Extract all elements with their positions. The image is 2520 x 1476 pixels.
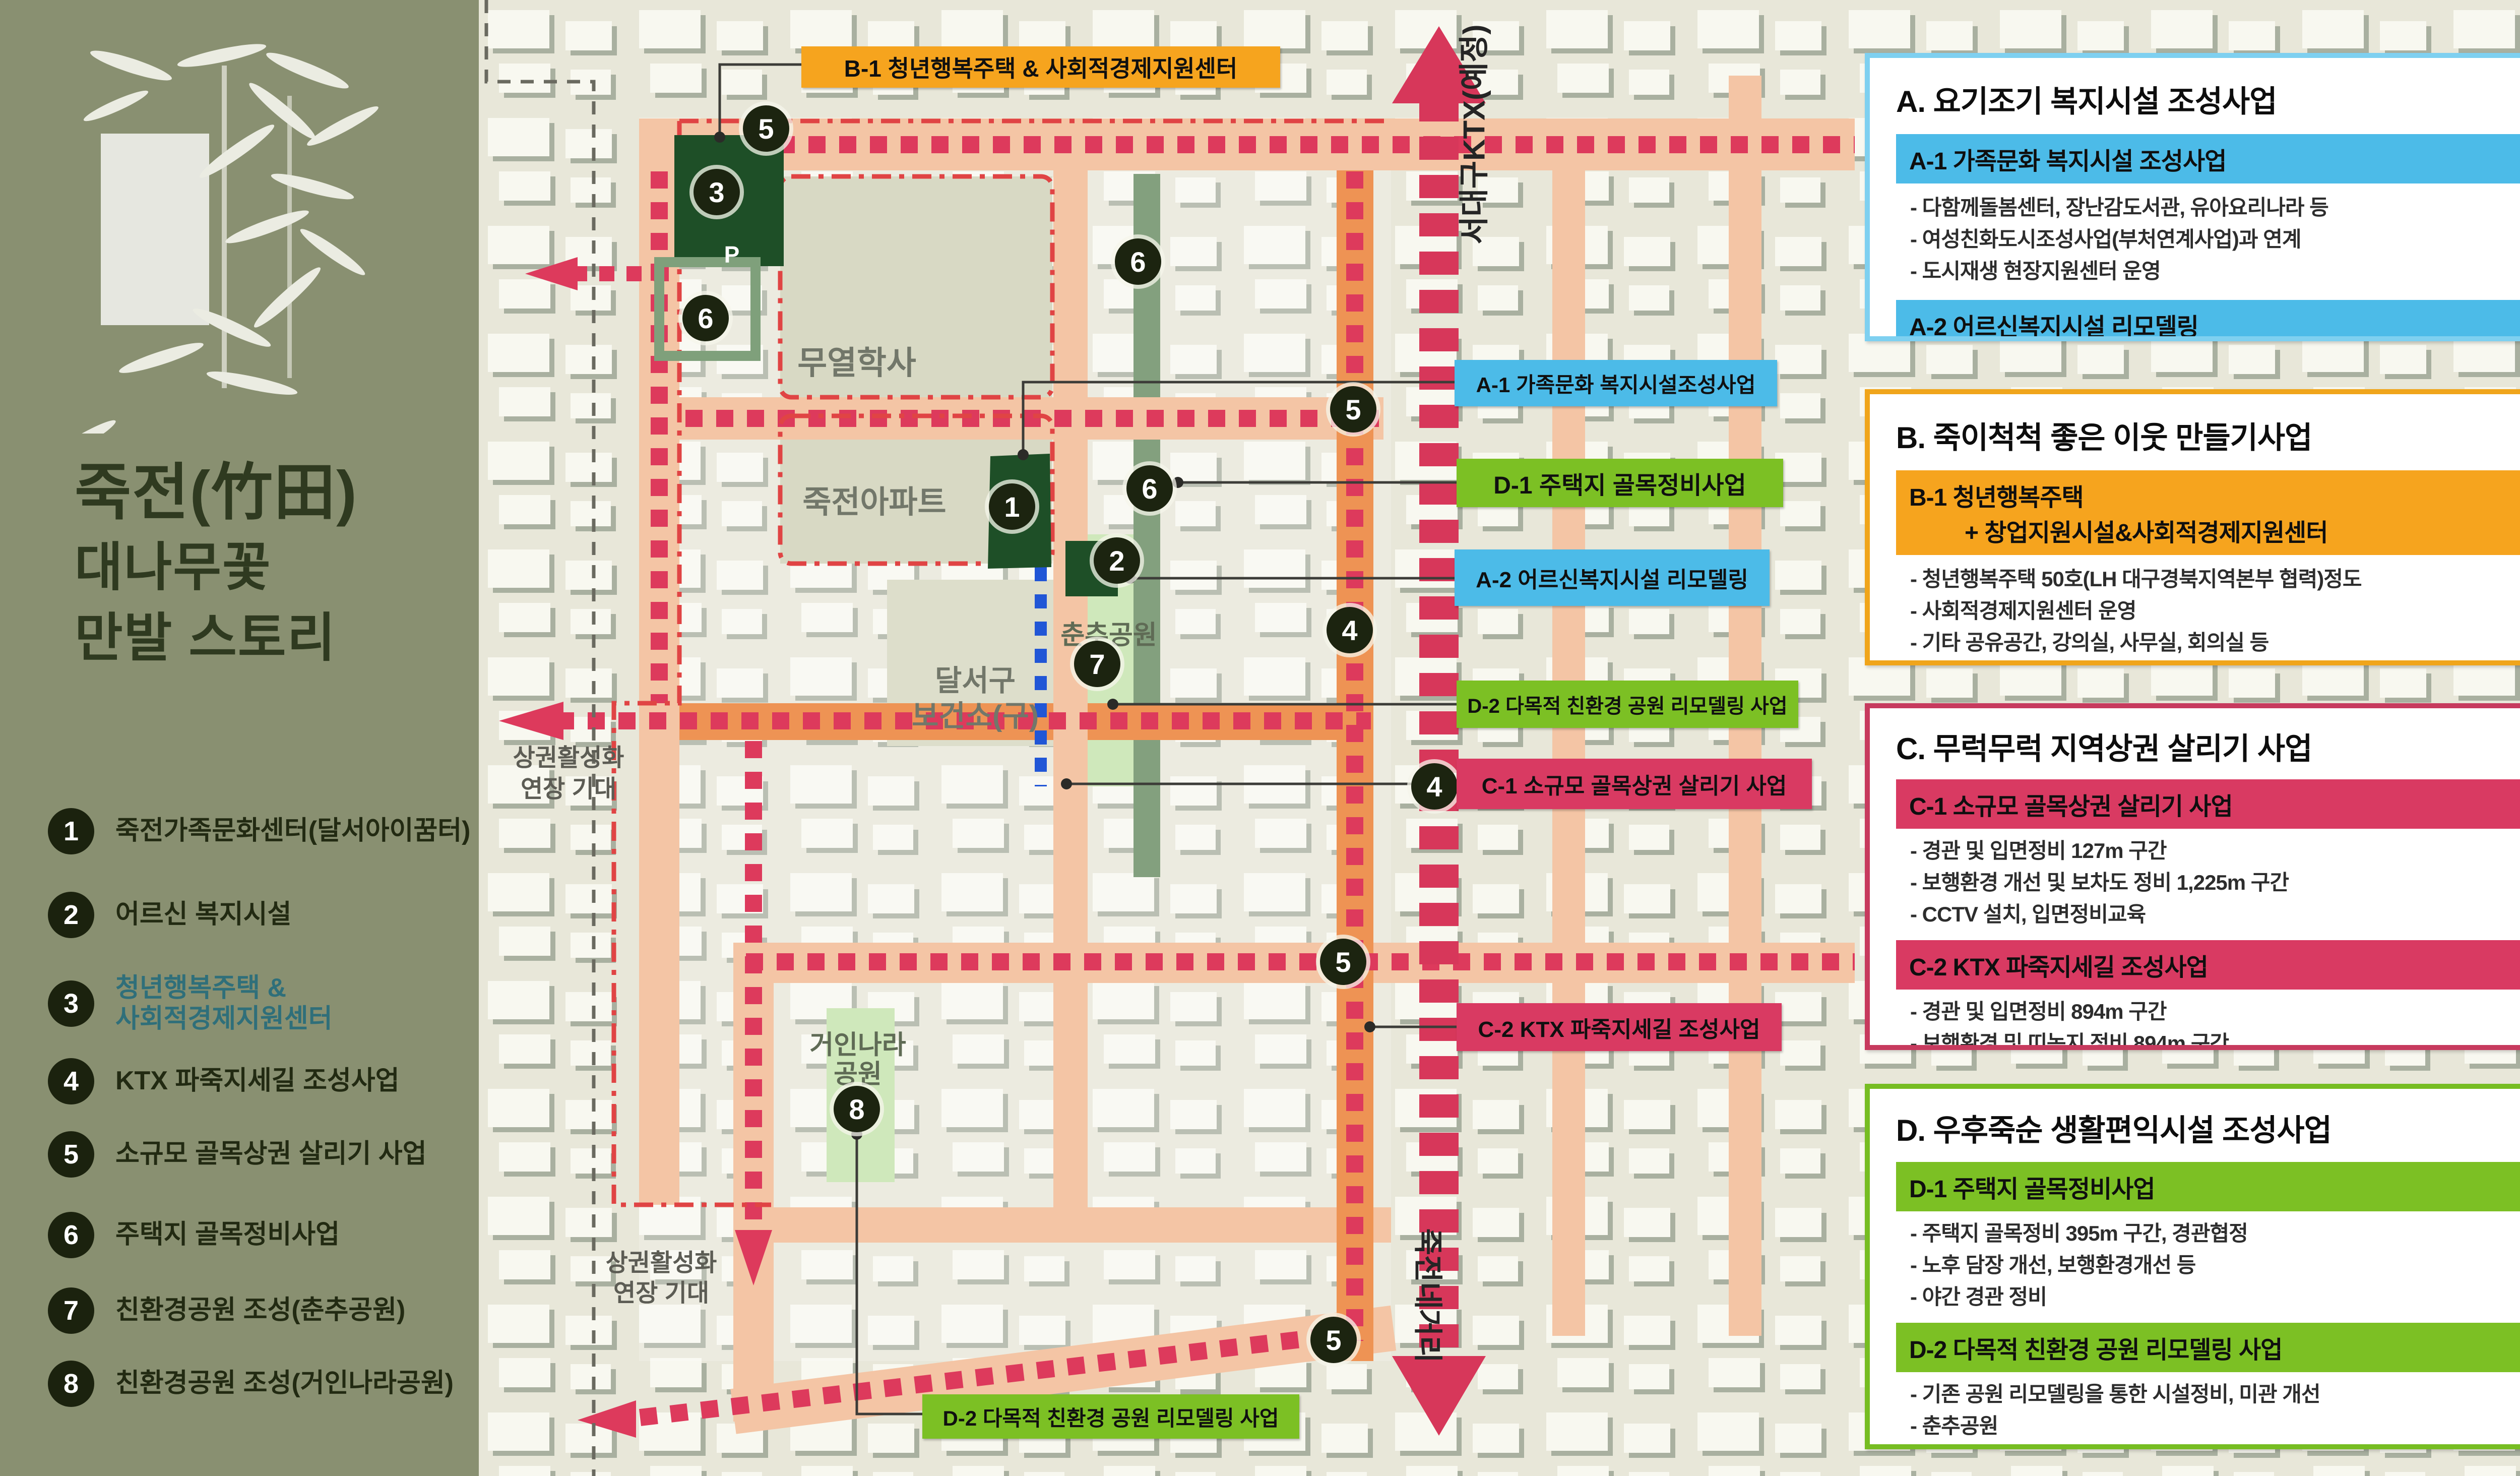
legend-number-7: 7: [48, 1287, 94, 1334]
legend-number-3: 3: [48, 980, 94, 1027]
label-jukjeon-intersection: 죽전네거리: [1409, 1195, 1452, 1396]
district-renewal-poster: 무열학사 죽전아파트 달서구 보건소(구) 춘추공원 거인나라 공원 상권활성화…: [0, 0, 2520, 1476]
bullet: - CCTV 설치, 입면정비교육: [1910, 898, 2520, 930]
map-marker-5: 5: [743, 105, 789, 152]
legend-label-7: 친환경공원 조성(춘추공원): [115, 1295, 405, 1326]
label-muyeolhaksa: 무열학사: [797, 337, 916, 384]
legend-number-4: 4: [48, 1058, 94, 1104]
poster-title-line1: 죽전(竹田): [75, 443, 358, 532]
map-marker-6: 6: [682, 295, 729, 341]
poster-title-line3: 만발 스토리: [75, 595, 336, 671]
panel-c-title: C. 무럭무럭 지역상권 살리기 사업: [1896, 724, 2520, 768]
parking-icon: P: [724, 241, 740, 268]
panel-c-commerce: C. 무럭무럭 지역상권 살리기 사업 C-1 소규모 골목상권 살리기 사업 …: [1865, 703, 2520, 1050]
bullet: - 주택지 골목정비 395m 구간, 경관협정: [1910, 1217, 2520, 1249]
map-marker-7: 7: [1074, 641, 1120, 687]
label-commerce-extension1-line2: 연장 기대: [521, 769, 616, 804]
panel-b1-header-line2: + 창업지원시설&사회적경제지원센터: [1909, 513, 2510, 548]
bullet: - 기타 공유공간, 강의실, 사무실, 회의실 등: [1910, 627, 2520, 658]
label-commerce-extension2-line2: 연장 기대: [613, 1273, 709, 1308]
legend-number-5: 5: [48, 1131, 94, 1178]
bullet: - 여성친화도시조성사업(부처연계사업)과 연계: [1910, 223, 2520, 255]
callout-d2-bottom: D-2 다목적 친환경 공원 리모델링 사업: [922, 1394, 1299, 1439]
panel-d-title: D. 우후죽순 생활편익시설 조성사업: [1896, 1106, 2520, 1150]
map-marker-2: 2: [1094, 537, 1140, 584]
legend-item-3: 3 청년행복주택 & 사회적경제지원센터: [48, 973, 333, 1035]
legend-item-8: 8 친환경공원 조성(거인나라공원): [48, 1361, 454, 1407]
panel-a1-header: A-1 가족문화 복지시설 조성사업: [1896, 134, 2520, 183]
panel-d1-bullets: - 주택지 골목정비 395m 구간, 경관협정 - 노후 담장 개선, 보행환…: [1896, 1217, 2520, 1313]
map-marker-6: 6: [1126, 465, 1173, 512]
bullet: - 보행환경 개선 및 보차도 정비 1,225m 구간: [1910, 867, 2520, 898]
panel-c2-header: C-2 KTX 파죽지세길 조성사업: [1896, 940, 2520, 990]
sidebar: 죽전(竹田) 대나무꽃 만발 스토리 1 죽전가족문화센터(달서아이꿈터) 2 …: [0, 0, 479, 1476]
bullet: - 춘추공원: [1910, 1410, 2520, 1442]
callout-d2-park: D-2 다목적 친환경 공원 리모델링 사업: [1457, 681, 1798, 728]
legend-label-6: 주택지 골목정비사업: [115, 1219, 340, 1250]
map-marker-5: 5: [1310, 1317, 1357, 1363]
legend-label-3-line2: 사회적경제지원센터: [115, 1004, 333, 1034]
label-seodaegu-ktx: 서대구KTX(예정): [1450, 0, 1494, 311]
legend-number-1: 1: [48, 808, 94, 854]
bamboo-illustration: [71, 35, 383, 434]
legend-number-6: 6: [48, 1212, 94, 1258]
bullet: - 보행환경 및 띠녹지 정비 894m 구간: [1910, 1027, 2520, 1050]
map-marker-6: 6: [1115, 238, 1161, 285]
map-marker-3: 3: [694, 169, 740, 215]
bullet: - 거인나라공원: [1910, 1442, 2520, 1449]
panel-a1-bullets: - 다함께돌봄센터, 장난감도서관, 유아요리나라 등 - 여성친화도시조성사업…: [1896, 192, 2520, 287]
panel-b1-header: B-1 청년행복주택 + 창업지원시설&사회적경제지원센터: [1896, 470, 2520, 555]
legend-item-5: 5 소규모 골목상권 살리기 사업: [48, 1131, 426, 1178]
panel-b-title: B. 죽이척척 좋은 이웃 만들기사업: [1896, 413, 2520, 457]
bullet: - 다함께돌봄센터, 장난감도서관, 유아요리나라 등: [1910, 192, 2520, 223]
panel-a-welfare: A. 요기조기 복지시설 조성사업 A-1 가족문화 복지시설 조성사업 - 다…: [1865, 53, 2520, 341]
panel-d-living: D. 우후죽순 생활편익시설 조성사업 D-1 주택지 골목정비사업 - 주택지…: [1865, 1084, 2520, 1449]
legend-item-6: 6 주택지 골목정비사업: [48, 1212, 340, 1258]
callout-c2: C-2 KTX 파죽지세길 조성사업: [1457, 1003, 1782, 1051]
bullet: - 청년행복주택 50호(LH 대구경북지역본부 협력)정도: [1910, 563, 2520, 595]
panel-b-neighbor: B. 죽이척척 좋은 이웃 만들기사업 B-1 청년행복주택 + 창업지원시설&…: [1865, 389, 2520, 665]
legend-number-8: 8: [48, 1361, 94, 1407]
map-marker-4: 4: [1411, 763, 1458, 810]
label-commerce-extension1-line1: 상권활성화: [513, 737, 624, 773]
poster-title-line2: 대나무꽃: [75, 524, 272, 600]
callout-b1: B-1 청년행복주택 & 사회적경제지원센터: [801, 46, 1280, 88]
bullet: - 도시재생 현장지원센터 운영: [1910, 255, 2520, 287]
legend-label-3: 청년행복주택 & 사회적경제지원센터: [115, 973, 333, 1035]
legend-item-4: 4 KTX 파죽지세길 조성사업: [48, 1058, 399, 1104]
map-marker-5: 5: [1330, 386, 1376, 433]
callout-a1: A-1 가족문화 복지시설조성사업: [1455, 360, 1777, 406]
map-marker-5: 5: [1320, 939, 1366, 985]
legend-label-8: 친환경공원 조성(거인나라공원): [115, 1368, 454, 1399]
bullet: - 경관 및 입면정비 127m 구간: [1910, 835, 2520, 867]
panel-d2-bullets: - 기존 공원 리모델링을 통한 시설정비, 미관 개선 - 춘추공원 - 거인…: [1896, 1378, 2520, 1449]
panel-d2-header: D-2 다목적 친환경 공원 리모델링 사업: [1896, 1323, 2520, 1372]
callout-c1: C-1 소규모 골목상권 살리기 사업: [1457, 759, 1812, 809]
panel-c1-header: C-1 소규모 골목상권 살리기 사업: [1896, 779, 2520, 829]
legend-item-1: 1 죽전가족문화센터(달서아이꿈터): [48, 808, 470, 854]
panel-a2-header: A-2 어르신복지시설 리모델링: [1896, 300, 2520, 341]
label-jukjeon-apartment: 죽전아파트: [802, 476, 946, 522]
legend-label-5: 소규모 골목상권 살리기 사업: [115, 1139, 426, 1170]
bullet: - 기존 공원 리모델링을 통한 시설정비, 미관 개선: [1910, 1378, 2520, 1410]
legend-item-2: 2 어르신 복지시설: [48, 892, 291, 938]
legend-label-1: 죽전가족문화센터(달서아이꿈터): [115, 816, 470, 846]
legend-label-3-line1: 청년행복주택 &: [115, 973, 333, 1004]
legend-label-2: 어르신 복지시설: [115, 899, 291, 930]
legend-item-7: 7 친환경공원 조성(춘추공원): [48, 1287, 405, 1334]
panel-b1-bullets: - 청년행복주택 50호(LH 대구경북지역본부 협력)정도 - 사회적경제지원…: [1896, 563, 2520, 658]
bullet: - 노후 담장 개선, 보행환경개선 등: [1910, 1249, 2520, 1281]
label-geoin-park-2: 공원: [834, 1053, 882, 1091]
bullet: - 야간 경관 정비: [1910, 1281, 2520, 1313]
panel-d1-header: D-1 주택지 골목정비사업: [1896, 1162, 2520, 1211]
panel-a-title: A. 요기조기 복지시설 조성사업: [1896, 77, 2520, 121]
callout-d1: D-1 주택지 골목정비사업: [1457, 459, 1783, 507]
bullet: - 사회적경제지원센터 운영: [1910, 595, 2520, 627]
map-marker-4: 4: [1327, 607, 1373, 653]
panel-b1-header-line1: B-1 청년행복주택: [1909, 477, 2510, 513]
bullet: - 경관 및 입면정비 894m 구간: [1910, 996, 2520, 1027]
legend-number-2: 2: [48, 892, 94, 938]
map-marker-8: 8: [834, 1086, 880, 1132]
label-health-center-2: 보건소(구): [912, 692, 1039, 734]
legend-label-4: KTX 파죽지세길 조성사업: [115, 1066, 399, 1096]
panel-c1-bullets: - 경관 및 입면정비 127m 구간 - 보행환경 개선 및 보차도 정비 1…: [1896, 835, 2520, 930]
callout-a2: A-2 어르신복지시설 리모델링: [1455, 549, 1770, 606]
map-marker-1: 1: [989, 483, 1035, 530]
panel-c2-bullets: - 경관 및 입면정비 894m 구간 - 보행환경 및 띠녹지 정비 894m…: [1896, 996, 2520, 1050]
